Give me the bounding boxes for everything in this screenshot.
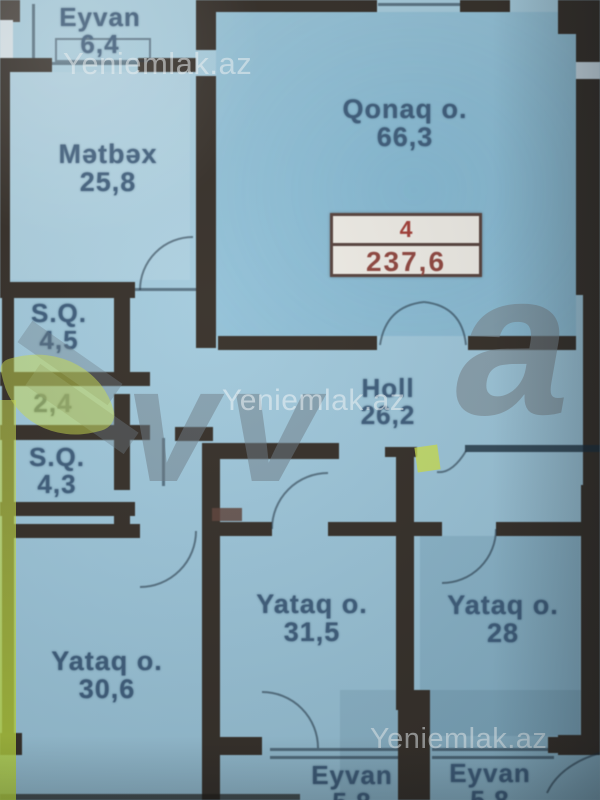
- room-area: 4,3: [29, 471, 85, 498]
- watermark-yeniemlak-middle: Yeniemlak.az: [222, 384, 405, 418]
- door-arc: [547, 753, 600, 793]
- room-name: Yataq o.: [51, 648, 163, 676]
- room-label-eyvan-bottom-right: Eyvan 5,8: [449, 760, 531, 800]
- room-area: 28: [447, 620, 559, 648]
- room-area: 25,8: [58, 169, 157, 197]
- room-name: Yataq o.: [256, 591, 368, 619]
- door-arc: [262, 692, 318, 748]
- area-badge: 4 237,6: [330, 213, 482, 277]
- door-arc: [442, 529, 496, 583]
- room-label-sq2: S.Q. 4,3: [29, 444, 85, 497]
- room-label-qonaq: Qonaq o. 66,3: [343, 96, 468, 151]
- room-area: 66,3: [343, 124, 468, 152]
- room-area: 30,6: [51, 676, 163, 704]
- door-arc: [140, 237, 193, 290]
- watermark-yeniemlak-top: Yeniemlak.az: [63, 46, 252, 82]
- room-area: 31,5: [256, 619, 368, 647]
- room-label-yataq-left: Yataq o. 30,6: [51, 648, 163, 703]
- room-label-yataq-right: Yataq o. 28: [447, 592, 559, 647]
- room-label-yataq-center: Yataq o. 31,5: [256, 591, 368, 646]
- room-name: Eyvan: [59, 4, 141, 31]
- room-label-metbex: Mətbəx 25,8: [58, 141, 157, 196]
- room-name: S.Q.: [29, 444, 85, 471]
- room-name: Eyvan: [311, 762, 393, 789]
- room-area: 5,8: [311, 789, 393, 800]
- watermark-logo-dot: [414, 445, 440, 473]
- room-name: Yataq o.: [447, 592, 559, 620]
- room-label-eyvan-bottom-left: Eyvan 5,8: [311, 762, 393, 800]
- door-arc: [140, 531, 196, 587]
- badge-total-area: 237,6: [333, 243, 479, 277]
- room-name: Eyvan: [449, 760, 531, 787]
- floorplan-photo: 4 237,6 Eyvan 6,4 Mətbəx 25,8 Qonaq o. 6…: [0, 0, 600, 800]
- room-name: Qonaq o.: [343, 96, 468, 124]
- watermark-yeniemlak-bottom: Yeniemlak.az: [370, 723, 547, 756]
- room-area: 5,8: [449, 787, 531, 800]
- door-arc: [380, 302, 424, 345]
- room-name: S.Q.: [31, 300, 87, 327]
- badge-room-count: 4: [333, 216, 479, 243]
- watermark-logo-strip: [0, 400, 16, 800]
- room-name: Mətbəx: [58, 141, 157, 169]
